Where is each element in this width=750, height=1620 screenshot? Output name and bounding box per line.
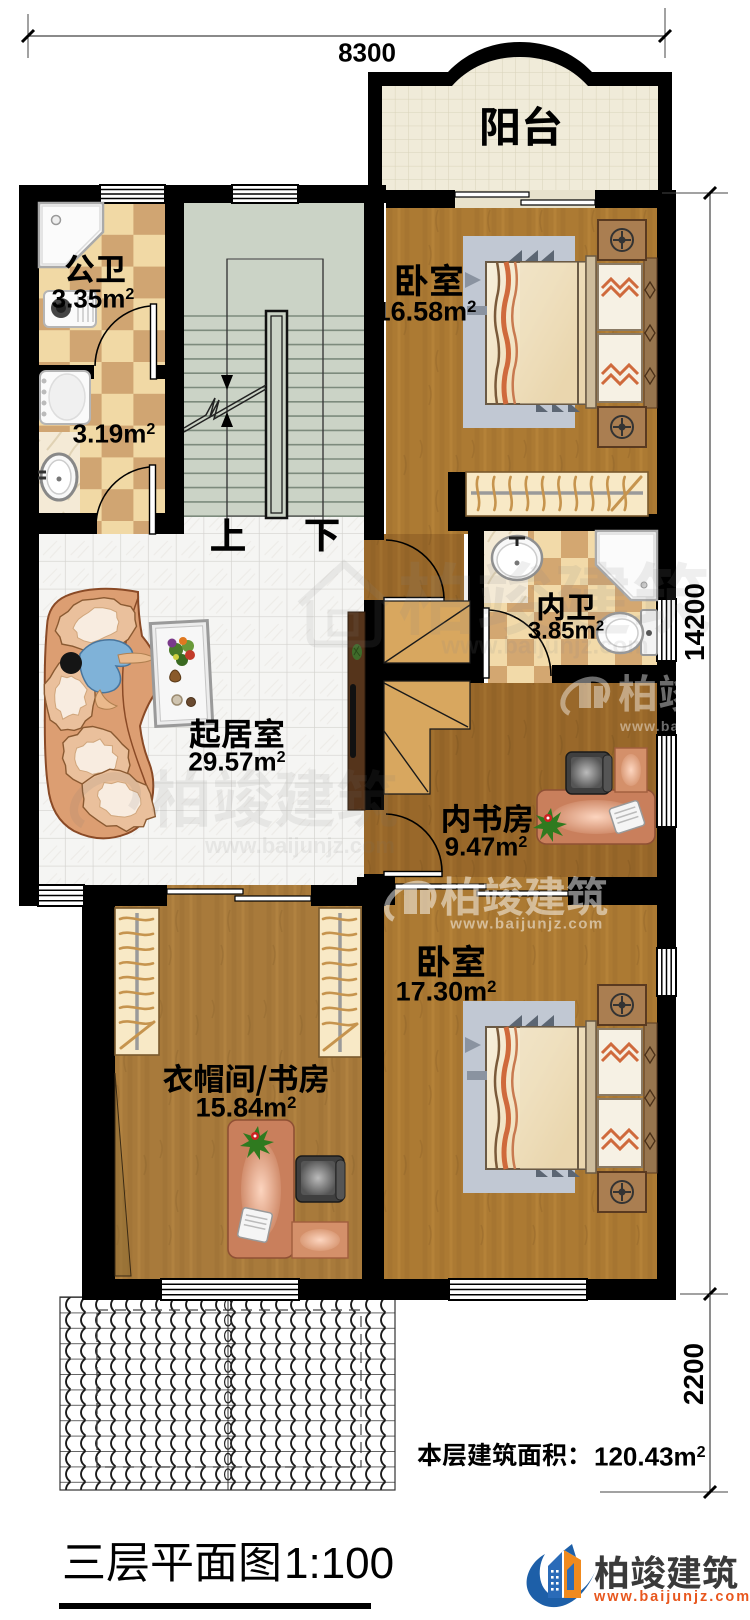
svg-text:1:100: 1:100 — [284, 1539, 394, 1588]
svg-text:16.58m2: 16.58m2 — [376, 297, 477, 327]
svg-text:120.43m2: 120.43m2 — [594, 1441, 706, 1471]
svg-text:3.19m2: 3.19m2 — [73, 418, 156, 448]
svg-text:www.baijunjz.com: www.baijunjz.com — [619, 718, 750, 734]
svg-text:9.47m2: 9.47m2 — [445, 831, 528, 861]
svg-text:8300: 8300 — [338, 37, 396, 67]
svg-text:www.baijunjz.com: www.baijunjz.com — [204, 833, 395, 858]
svg-text:14200: 14200 — [679, 583, 710, 661]
svg-text:29.57m2: 29.57m2 — [188, 746, 285, 776]
svg-text:3.85m2: 3.85m2 — [528, 618, 604, 645]
svg-text:www.baijunjz.com: www.baijunjz.com — [593, 1589, 750, 1605]
svg-text:www.baijunjz.com: www.baijunjz.com — [449, 915, 603, 932]
svg-text:15.84m2: 15.84m2 — [196, 1093, 297, 1123]
svg-text:17.30m2: 17.30m2 — [396, 977, 497, 1007]
svg-text:2200: 2200 — [678, 1343, 709, 1405]
svg-text:3.35m2: 3.35m2 — [52, 283, 135, 313]
